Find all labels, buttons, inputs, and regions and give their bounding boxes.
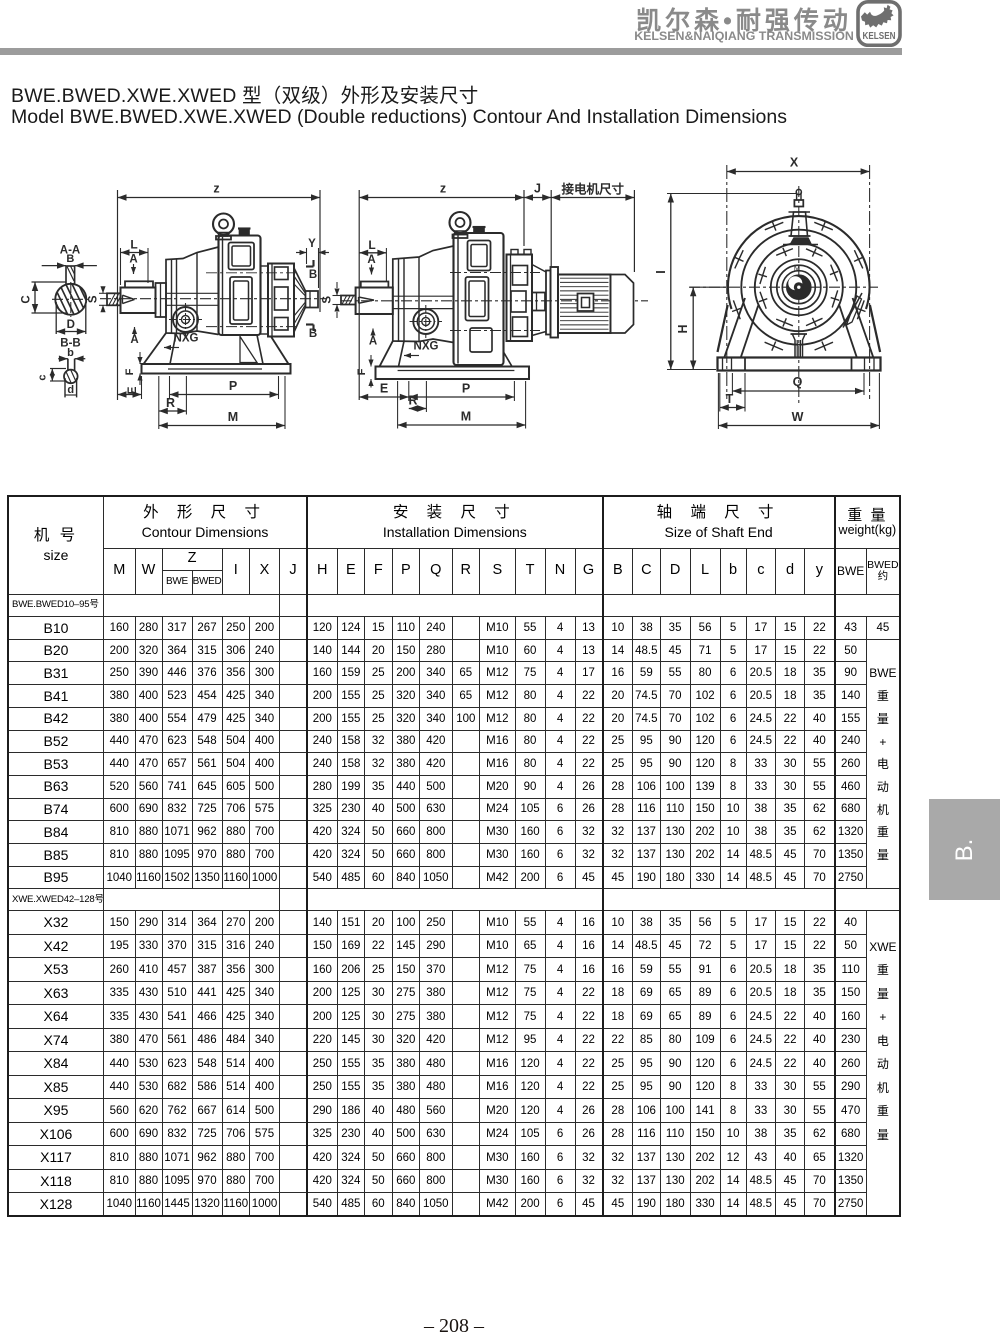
- svg-text:KELSEN: KELSEN: [863, 30, 896, 42]
- svg-text:S: S: [322, 296, 334, 304]
- svg-text:I: I: [654, 270, 668, 273]
- svg-text:A: A: [129, 254, 137, 266]
- svg-text:A: A: [367, 254, 375, 266]
- svg-text:C: C: [21, 295, 33, 303]
- svg-text:T: T: [726, 392, 734, 406]
- svg-text:NXG: NXG: [174, 333, 199, 345]
- svg-text:R: R: [166, 396, 175, 410]
- svg-text:X: X: [790, 156, 799, 170]
- svg-text:B: B: [309, 328, 317, 340]
- svg-text:接电机尺寸: 接电机尺寸: [562, 182, 625, 197]
- svg-text:d: d: [67, 384, 74, 396]
- svg-text:L: L: [130, 238, 137, 252]
- svg-text:M: M: [794, 264, 800, 273]
- svg-text:E: E: [380, 382, 388, 396]
- svg-text:P: P: [229, 379, 237, 393]
- svg-text:b: b: [67, 347, 74, 359]
- svg-text:D: D: [67, 319, 75, 331]
- svg-text:L: L: [368, 238, 375, 252]
- svg-text:B: B: [66, 253, 74, 265]
- svg-text:E: E: [125, 386, 139, 394]
- svg-text:S: S: [88, 295, 100, 303]
- svg-text:Y: Y: [308, 238, 316, 250]
- svg-text:M: M: [461, 410, 471, 424]
- svg-text:F: F: [356, 368, 368, 375]
- svg-text:H: H: [676, 324, 690, 333]
- svg-text:J: J: [534, 182, 541, 196]
- svg-text:B: B: [309, 269, 317, 281]
- svg-text:c: c: [37, 374, 49, 380]
- svg-text:z: z: [440, 182, 446, 196]
- svg-text:W: W: [792, 410, 804, 424]
- svg-text:NXG: NXG: [414, 341, 439, 353]
- svg-text:F: F: [124, 368, 136, 375]
- svg-text:Q: Q: [793, 375, 803, 389]
- svg-text:z: z: [213, 182, 219, 196]
- svg-text:R: R: [408, 394, 417, 408]
- svg-text:M: M: [228, 410, 238, 424]
- svg-text:P: P: [462, 382, 470, 396]
